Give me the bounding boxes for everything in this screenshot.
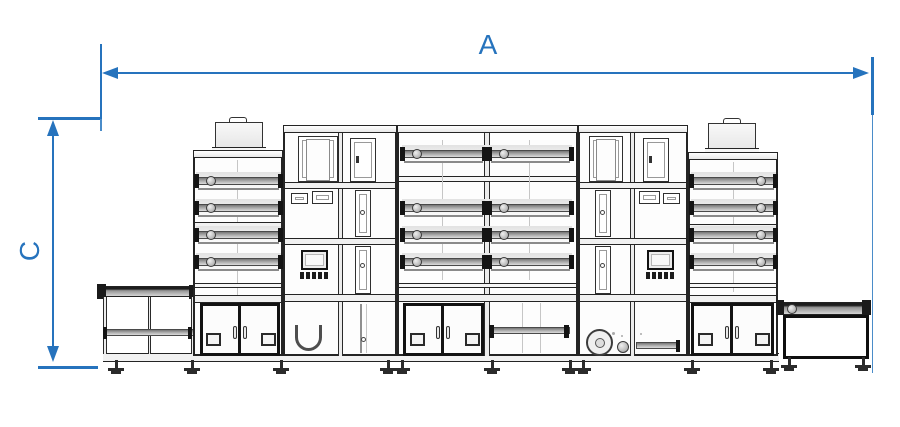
panel-button [652,272,656,279]
conveyor-motor [499,149,509,159]
dim-a-arrowhead-left [102,67,118,79]
conveyor-bracket [194,201,199,215]
right-door-vent-square [755,333,770,346]
conveyor-return-rail [693,188,774,190]
leveling-foot [574,360,592,376]
tower-a-narrow-door [350,138,376,182]
panel-button [670,272,674,279]
hmi-button-row-left [300,272,328,279]
door-knob [360,263,365,268]
conveyor-return-rail [491,215,570,217]
dim-a-extension-line-right-tail [872,115,874,373]
tower-b-access-door-leaf [596,139,616,181]
conveyor-motor [499,203,509,213]
panel-button [300,272,304,279]
dim-a-extension-line-left [100,44,102,119]
tower-b-bar [580,182,686,189]
right-cabinet-bottom-bar [690,295,776,303]
outfeed-drive-motor [787,304,797,314]
outfeed-belt-end-cap-left [776,300,784,315]
leveling-foot [393,360,411,376]
conveyor-bracket [400,228,405,242]
tower-a-narrow-door [355,246,371,294]
central-door-pull [446,326,450,339]
left-door-divider [238,305,241,354]
central-door-pull [436,326,440,339]
left-door-pull [243,326,247,339]
right-cabinet-shelf-bar [690,283,776,288]
conveyor-motor [412,257,422,267]
guide-roller [361,337,366,342]
infeed-conveyor-belt [100,286,197,297]
conveyor-motor [499,257,509,267]
leveling-foot [683,360,701,376]
conveyor-bracket [689,201,694,215]
tower-b-narrow-door [595,246,611,294]
conveyor-return-rail [693,215,774,217]
blower-motor [617,341,629,353]
conveyor-bracket [194,255,199,269]
tower-a-bottom-guide [360,304,362,353]
dim-c-tick-bottom [38,366,98,369]
conveyor-bracket [773,255,778,269]
door-handle [356,156,359,163]
central-shelf-bar [399,283,576,288]
tower-a-bar [285,294,395,302]
conveyor-bracket [487,201,492,215]
door-knob [600,263,605,268]
conveyor-bracket [400,255,405,269]
conveyor-motor [206,230,216,240]
dim-a-label: A [462,28,514,62]
tower-b-bar [580,238,686,245]
central-bottom-bar [399,294,576,302]
conveyor-bracket [278,174,283,188]
detail-dot [612,332,615,335]
foot-pad [858,368,868,371]
conveyor-motor [756,230,766,240]
dim-a-arrowhead-right [853,67,869,79]
rail-bracket [676,340,680,352]
foot-pad [578,371,588,374]
conveyor-return-rail [198,242,279,244]
outfeed-table-frame [783,315,869,359]
infeed-lower-rail [105,329,194,336]
dim-a-extension-line-left-tail [100,119,102,131]
right-door-pull [735,326,739,339]
panel-button [324,272,328,279]
conveyor-motor [206,176,216,186]
leveling-foot [780,357,798,373]
dim-a-line [106,72,866,75]
conveyor-bracket [194,174,199,188]
tower-a-lock-plate [291,193,308,204]
conveyor-bracket [569,255,574,269]
foot-pad [766,371,776,374]
foot-pad [687,371,697,374]
conveyor-bracket [689,255,694,269]
conveyor-bracket [278,228,283,242]
tower-a-bar [285,182,395,189]
conveyor-return-rail [693,242,774,244]
conveyor-bracket [773,228,778,242]
tower-b-lock-plate [663,193,680,204]
leveling-foot [107,360,125,376]
leveling-foot [483,360,501,376]
conveyor-motor [412,149,422,159]
door-knob [360,210,365,215]
panel-button [646,272,650,279]
infeed-rail-bracket [103,327,107,339]
conveyor-bracket [278,255,283,269]
flex-conduit-loop [295,325,322,351]
conveyor-bracket [194,228,199,242]
leveling-foot [854,357,872,373]
conveyor-bracket [400,147,405,161]
foot-pad [487,371,497,374]
conveyor-bracket [569,228,574,242]
tower-a-bottom-guide [366,304,367,353]
right-door-pull [725,326,729,339]
conveyor-motor [756,257,766,267]
detail-dot [640,333,642,335]
conveyor-motor [756,176,766,186]
conveyor-return-rail [198,215,279,217]
conveyor-motor [499,230,509,240]
conveyor-return-rail [404,269,483,271]
central-door-vent-square [465,333,480,346]
dim-c-label: C [13,227,47,275]
leveling-foot [762,360,780,376]
panel-button [664,272,668,279]
conveyor-bracket [689,174,694,188]
foot-pad [276,371,286,374]
door-handle [649,156,652,163]
foot-pad [111,371,121,374]
infeed-frame-leg [103,297,107,354]
tower-b-lock-plate [639,191,660,204]
conveyor-return-rail [198,188,279,190]
tower-b-top-cap [578,125,688,133]
foot-pad [397,371,407,374]
conveyor-bracket [569,147,574,161]
dim-a-extension-line-right [871,57,874,115]
tower-a-access-door-leaf [306,139,330,181]
left-door-vent-square [206,333,221,346]
infeed-frame-leg [148,297,151,354]
door-knob [600,210,605,215]
tower-b-bar [580,294,686,302]
hmi-button-row-right [646,272,674,279]
technical-drawing-canvas: A C [0,0,900,427]
infeed-rail-bracket [188,327,192,339]
foot-pad [383,371,393,374]
conveyor-bracket [400,201,405,215]
detail-dot [621,335,623,337]
conveyor-bracket [487,255,492,269]
panel-button [658,272,662,279]
conveyor-return-rail [404,215,483,217]
panel-button [306,272,310,279]
conveyor-return-rail [491,269,570,271]
panel-button [312,272,316,279]
conveyor-bracket [689,228,694,242]
left-cabinet-top-cap [193,150,283,158]
leveling-foot [183,360,201,376]
conveyor-return-rail [404,242,483,244]
hmi-screen-right [647,250,674,270]
conveyor-motor [412,230,422,240]
right-door-vent-square [698,333,713,346]
foot-pad [187,371,197,374]
central-door-vent-square [410,333,425,346]
conveyor-bracket [569,201,574,215]
right-cabinet-top-cap [688,152,778,160]
conveyor-motor [756,203,766,213]
left-door-vent-square [261,333,276,346]
blower-rail [636,342,680,349]
dim-c-arrowhead-bottom [47,346,59,362]
conveyor-bracket [278,201,283,215]
conveyor-bracket [487,147,492,161]
foot-pad [784,368,794,371]
conveyor-bracket [487,228,492,242]
left-door-pull [233,326,237,339]
conveyor-return-rail [491,242,570,244]
blower-hub [595,338,605,348]
leveling-foot [272,360,290,376]
conveyor-motor [206,203,216,213]
tower-a-top-cap [283,125,397,133]
conveyor-bracket [773,201,778,215]
tower-a-bar [285,238,395,245]
bottom-transfer-rail [491,327,570,334]
conveyor-return-rail [491,161,570,163]
hmi-screen-left [301,250,328,270]
central-double-column [484,133,490,356]
central-door-divider [441,305,444,354]
tower-a-lock-plate [312,191,333,204]
conveyor-bracket [773,174,778,188]
conveyor-return-rail [693,269,774,271]
dim-c-line [52,130,55,352]
rail-bracket [489,325,494,338]
left-cabinet-shelf-bar [195,283,281,288]
panel-button [318,272,322,279]
right-door-divider [730,305,733,354]
central-top-cap [397,125,578,133]
conveyor-return-rail [404,161,483,163]
rail-bracket [564,325,569,338]
conveyor-motor [206,257,216,267]
roof-exhaust-unit-left [215,122,263,150]
conveyor-motor [412,203,422,213]
central-shelf-bar [399,176,576,182]
left-cabinet-bottom-bar [195,295,281,303]
dim-c-arrowhead-top [47,120,59,136]
outfeed-belt-end-cap-right [862,300,871,315]
tower-b-narrow-door [643,138,669,182]
conveyor-return-rail [198,269,279,271]
